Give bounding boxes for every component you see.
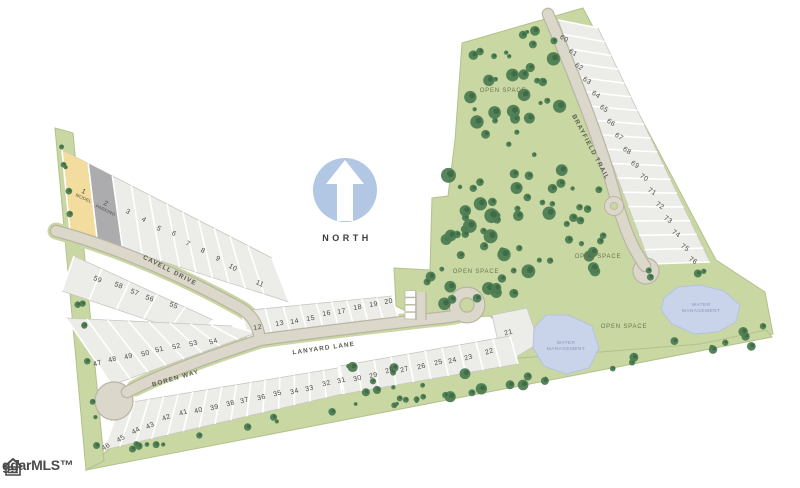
lot-number-17: 17 — [337, 308, 347, 316]
tree-icon — [527, 374, 531, 378]
tree-icon — [155, 442, 158, 445]
tree-icon — [163, 443, 165, 445]
tree-icon — [416, 400, 418, 402]
tree-icon — [540, 102, 542, 104]
tree-icon — [422, 384, 424, 386]
tree-icon — [132, 447, 135, 450]
tree-icon — [527, 267, 533, 273]
tree-icon — [534, 28, 538, 32]
tree-icon — [633, 354, 637, 358]
north-arrow: NORTH — [313, 158, 377, 243]
lot-number-20: 20 — [384, 298, 394, 306]
open-space-label: OPEN SPACE — [453, 269, 500, 275]
tree-icon — [711, 346, 713, 348]
tree-icon — [527, 31, 529, 33]
tree-icon — [527, 195, 530, 198]
tree-icon — [495, 78, 497, 80]
tree-icon — [522, 381, 527, 386]
tree-icon — [552, 202, 555, 205]
tree-icon — [399, 396, 402, 399]
open-space-label: OPEN SPACE — [601, 324, 648, 330]
tree-icon — [473, 186, 476, 189]
tree-icon — [460, 252, 464, 256]
tree-icon — [472, 52, 476, 56]
tree-icon — [63, 163, 66, 166]
tree-icon — [450, 232, 455, 237]
tree-icon — [96, 443, 99, 446]
tree-icon — [703, 270, 705, 272]
tree-icon — [725, 341, 728, 344]
tree-icon — [61, 145, 63, 147]
tree-icon — [476, 118, 482, 124]
tree-icon — [495, 285, 500, 290]
tree-icon — [397, 403, 399, 405]
tree-icon — [493, 108, 499, 114]
site-plan-svg: CAVELL DRIVEBOREN WAYLANYARD LANEBRAYFIE… — [0, 0, 800, 488]
tree-icon — [147, 443, 149, 445]
tree-icon — [506, 51, 508, 53]
tree-icon — [447, 171, 454, 178]
tree-icon — [355, 403, 357, 405]
tree-icon — [247, 425, 250, 428]
tree-icon — [485, 131, 489, 135]
tree-icon — [276, 420, 278, 422]
tree-icon — [572, 187, 574, 189]
road-label-lanyard-lane: LANYARD LANE — [292, 341, 355, 357]
tree-icon — [430, 273, 435, 278]
tree-icon — [490, 211, 497, 218]
tree-icon — [68, 189, 71, 192]
tree-icon — [509, 382, 513, 386]
lot-divider — [639, 234, 697, 235]
tree-icon — [542, 79, 546, 83]
tree-icon — [443, 300, 449, 306]
lot-number-16: 16 — [322, 310, 332, 318]
tree-icon — [479, 199, 485, 205]
tree-icon — [468, 222, 474, 228]
tree-icon — [750, 343, 754, 347]
tree-icon — [544, 378, 548, 382]
tree-icon — [445, 393, 448, 396]
tree-icon — [423, 395, 426, 398]
tree-icon — [513, 269, 516, 272]
tree-icon — [365, 390, 369, 394]
tree-icon — [600, 239, 603, 242]
tree-icon — [483, 229, 486, 232]
tree-icon — [352, 364, 357, 369]
tree-icon — [592, 249, 597, 254]
tree-icon — [441, 268, 443, 270]
lot-number-12: 12 — [253, 324, 263, 332]
tree-icon — [534, 153, 536, 155]
tree-icon — [552, 186, 556, 190]
tree-icon — [512, 107, 518, 113]
lot-number-19: 19 — [369, 301, 379, 309]
tree-icon — [566, 222, 569, 225]
tree-icon — [529, 64, 533, 68]
tree-icon — [648, 268, 651, 271]
tree-icon — [558, 102, 564, 108]
tree-icon — [376, 387, 380, 391]
tree-icon — [519, 246, 522, 249]
tree-icon — [581, 242, 583, 244]
tree-icon — [483, 244, 487, 248]
tree-icon — [553, 39, 556, 42]
lot-number-14: 14 — [290, 318, 300, 326]
tree-icon — [494, 119, 497, 122]
tree-icon — [517, 212, 522, 217]
tree-icon — [199, 433, 202, 436]
tree-icon — [762, 324, 765, 327]
tree-icon — [509, 55, 511, 57]
tree-icon — [552, 54, 558, 60]
tree-icon — [479, 49, 482, 52]
tree-icon — [598, 187, 601, 190]
lot-number-18: 18 — [353, 304, 363, 312]
tree-icon — [568, 237, 572, 241]
tree-icon — [579, 205, 582, 208]
tree-icon — [460, 185, 462, 187]
tree-icon — [476, 295, 480, 299]
site-plan-page: CAVELL DRIVEBOREN WAYLANYARD LANEBRAYFIE… — [0, 0, 800, 488]
tree-icon — [515, 184, 520, 189]
tree-icon — [573, 215, 577, 219]
tree-icon — [513, 290, 517, 294]
house-icon — [2, 457, 24, 477]
tree-icon — [742, 329, 746, 333]
tree-icon — [480, 388, 481, 389]
tree-icon — [426, 280, 429, 283]
tree-icon — [522, 32, 526, 36]
tree-icon — [464, 207, 469, 212]
tree-icon — [95, 416, 97, 418]
tree-icon — [449, 393, 454, 398]
tree-icon — [65, 166, 67, 168]
tree-icon — [69, 212, 72, 215]
tree-icon — [532, 42, 536, 46]
tree-icon — [523, 71, 528, 76]
tree-icon — [511, 71, 517, 77]
tree-icon — [489, 232, 495, 238]
tree-icon — [416, 397, 419, 400]
tree-icon — [592, 264, 597, 269]
tree-icon — [517, 207, 520, 210]
tree-icon — [513, 171, 517, 175]
tree-icon — [493, 54, 496, 57]
tree-icon — [580, 218, 583, 221]
tree-icon — [674, 339, 678, 343]
tree-icon — [548, 209, 554, 215]
tree-icon — [612, 367, 615, 370]
tree-icon — [451, 296, 455, 300]
tree-icon — [82, 301, 85, 304]
tree-icon — [508, 142, 510, 144]
tree-icon — [136, 442, 139, 445]
lot-number-13: 13 — [275, 320, 285, 328]
tree-icon — [456, 232, 459, 235]
tree-icon — [516, 130, 518, 132]
tree-icon — [560, 180, 564, 184]
tree-icon — [464, 370, 469, 375]
tree-icon — [393, 386, 395, 388]
tree-icon — [84, 323, 87, 326]
tree-icon — [491, 199, 495, 203]
tree-icon — [542, 201, 545, 204]
lot-number-15: 15 — [306, 315, 316, 323]
tree-icon — [479, 180, 482, 183]
open-space-label: OPEN SPACE — [480, 88, 527, 94]
tree-icon — [503, 250, 509, 256]
tree-icon — [465, 232, 468, 235]
tree-icon — [405, 398, 408, 401]
tree-icon — [471, 390, 474, 393]
tree-icon — [474, 108, 476, 110]
tree-icon — [393, 365, 397, 369]
tree-icon — [587, 207, 590, 210]
tree-icon — [697, 271, 701, 275]
tree-icon — [547, 99, 550, 102]
tree-icon — [602, 234, 605, 237]
mls-logo: ggarMLS™ — [2, 457, 74, 473]
tree-icon — [331, 409, 334, 412]
tree-icon — [92, 400, 95, 403]
tree-icon — [469, 93, 475, 99]
parking-stalls — [405, 291, 416, 320]
tree-icon — [650, 275, 653, 278]
tree-icon — [501, 276, 505, 280]
tree-icon — [87, 359, 90, 362]
tree-icon — [549, 259, 552, 262]
tree-icon — [77, 303, 80, 306]
tree-icon — [488, 77, 493, 82]
tree-icon — [539, 259, 541, 261]
tree-icon — [528, 115, 533, 120]
tree-icon — [561, 166, 566, 171]
tree-icon — [273, 415, 276, 418]
tree-icon — [449, 283, 454, 288]
north-label: NORTH — [322, 233, 372, 243]
open-space-label: OPEN SPACE — [575, 254, 622, 260]
tree-icon — [528, 173, 532, 177]
